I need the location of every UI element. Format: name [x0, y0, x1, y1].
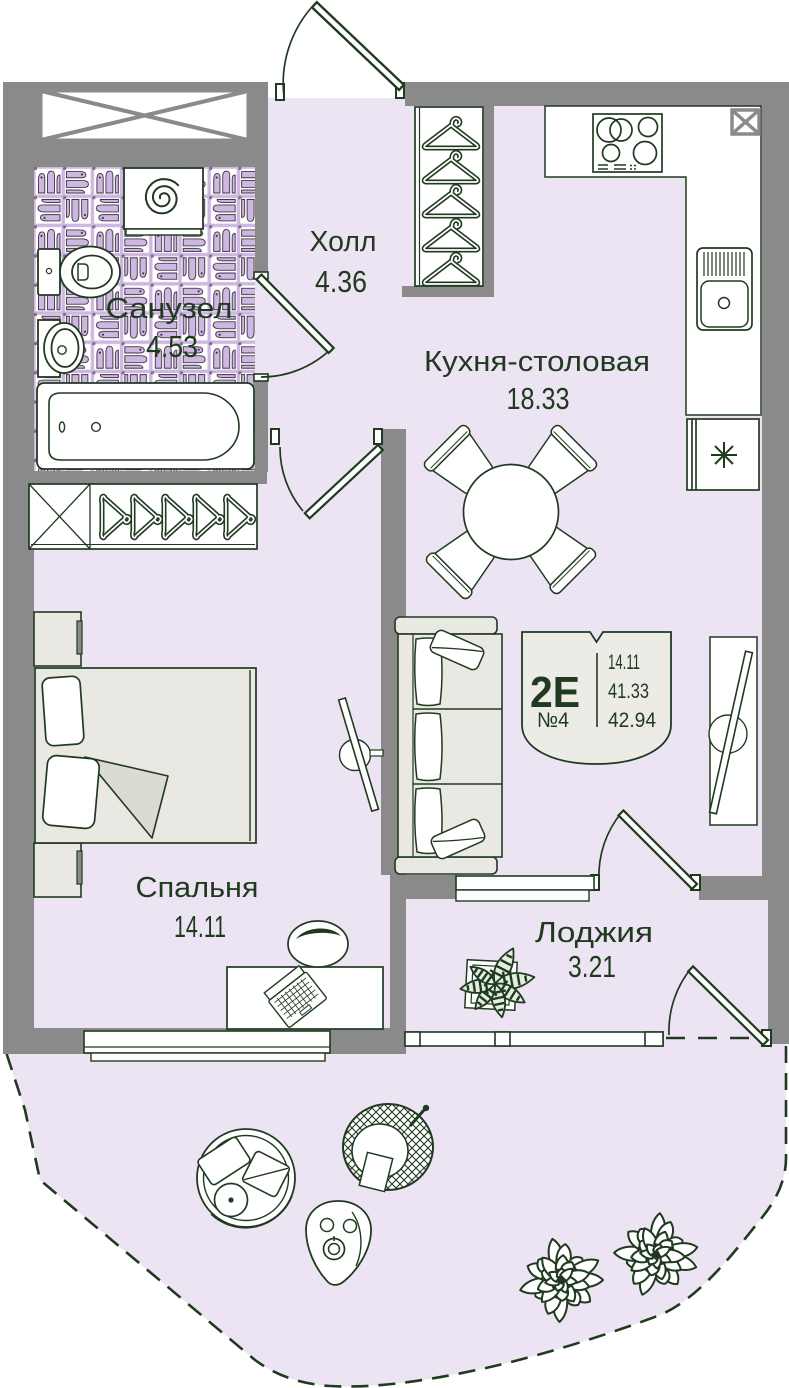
svg-text:№4: №4 [537, 709, 569, 732]
svg-text:Кухня-столовая: Кухня-столовая [424, 346, 650, 378]
svg-text:Лоджия: Лоджия [535, 917, 653, 949]
svg-text:14.11: 14.11 [174, 909, 226, 944]
svg-text:42.94: 42.94 [608, 709, 656, 732]
svg-text:4.36: 4.36 [315, 264, 367, 299]
svg-text:Холл: Холл [310, 226, 377, 258]
svg-text:4.53: 4.53 [146, 329, 198, 364]
svg-text:41.33: 41.33 [608, 680, 649, 703]
svg-text:18.33: 18.33 [507, 381, 570, 416]
svg-text:3.21: 3.21 [568, 949, 616, 984]
svg-text:14.11: 14.11 [608, 651, 640, 674]
svg-text:Спальня: Спальня [136, 872, 259, 904]
svg-text:Санузел: Санузел [106, 293, 233, 325]
